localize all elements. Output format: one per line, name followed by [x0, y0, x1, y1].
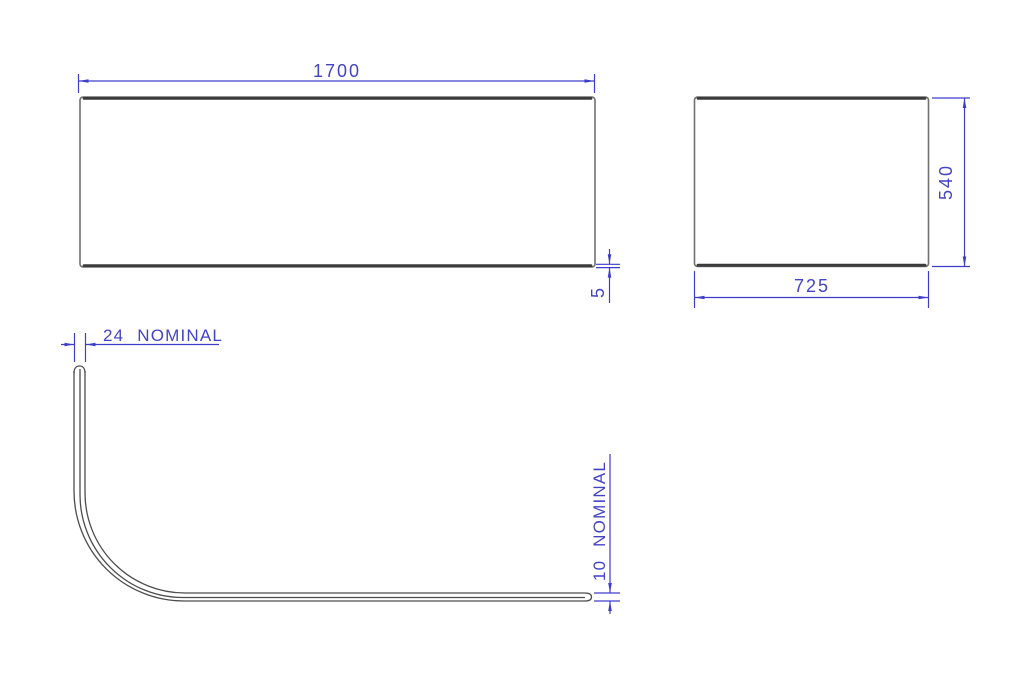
- profile-end-cap: [585, 593, 592, 601]
- front-edge-extension-ticks: [596, 264, 620, 267]
- end-panel-outline: [695, 97, 929, 267]
- plan-profile-view: 24 NOMINAL 10 NOMINAL: [61, 326, 620, 614]
- front-edge-arrow-up: [608, 268, 612, 278]
- return-arrow-right: [65, 343, 75, 347]
- return-extension-lines: [75, 333, 86, 362]
- front-width-arrow-right: [585, 79, 595, 83]
- end-height-dimension-text: 540: [936, 164, 956, 200]
- profile-inner-line: [85, 371, 585, 593]
- front-panel-view: 1700 5: [79, 61, 621, 303]
- front-edge-arrow-down: [608, 254, 612, 264]
- thickness-arrow-down: [608, 583, 612, 593]
- bath-panel-drawing: 1700 5 540: [0, 0, 1024, 684]
- end-panel-view: 540 725: [695, 97, 971, 308]
- thickness-extension-ticks: [594, 593, 620, 601]
- profile-thickness-dimension: 10 NOMINAL: [590, 454, 620, 614]
- end-height-arrow-down: [963, 257, 967, 267]
- end-height-arrow-up: [963, 98, 967, 108]
- return-arrow-left: [86, 343, 96, 347]
- front-edge-thickness-dimension: 5: [588, 249, 620, 303]
- technical-drawing-canvas: 1700 5 540: [0, 0, 1024, 684]
- front-panel-outline: [80, 97, 595, 267]
- profile-outer-line: [74, 371, 585, 601]
- profile-return-dimension: 24 NOMINAL: [61, 326, 223, 362]
- end-width-arrow-left: [695, 296, 705, 300]
- profile-middle-line: [80, 369, 585, 598]
- front-width-arrow-left: [79, 79, 89, 83]
- end-width-dimension: 725: [695, 271, 929, 308]
- front-edge-dimension-text: 5: [588, 286, 608, 298]
- end-width-arrow-right: [919, 296, 929, 300]
- thickness-dimension-text: 10 NOMINAL: [590, 461, 609, 581]
- end-width-dimension-text: 725: [794, 276, 830, 296]
- end-height-dimension: 540: [932, 98, 970, 267]
- front-width-dimension-text: 1700: [313, 61, 361, 81]
- thickness-arrow-up: [608, 601, 612, 611]
- return-dimension-text: 24 NOMINAL: [103, 326, 223, 345]
- front-width-dimension: 1700: [79, 61, 595, 93]
